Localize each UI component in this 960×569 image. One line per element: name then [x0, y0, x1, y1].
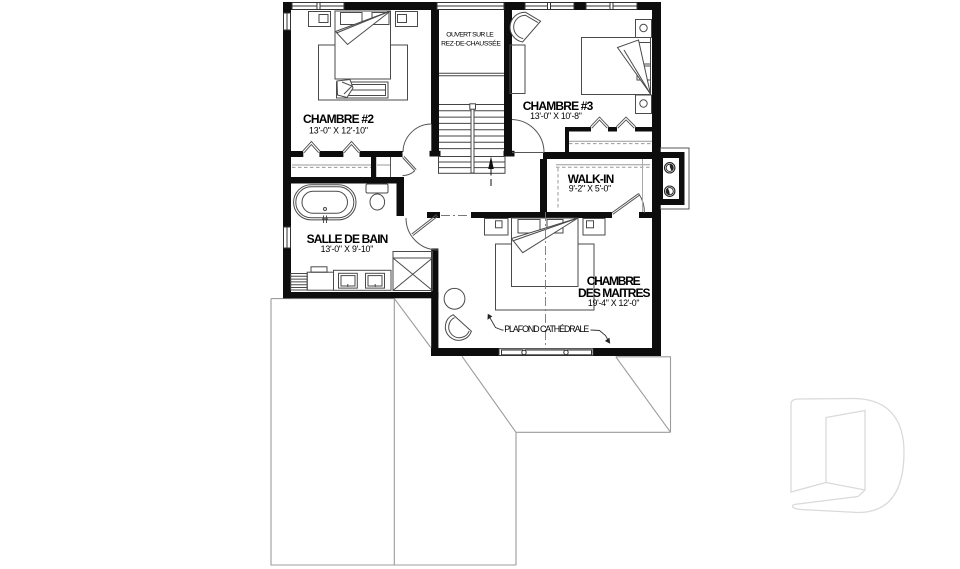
svg-text:OUVERT SUR LE: OUVERT SUR LE: [446, 32, 494, 39]
svg-text:19'-4" X 12'-0": 19'-4" X 12'-0": [588, 298, 640, 308]
svg-text:CHAMBRE #2: CHAMBRE #2: [303, 112, 374, 126]
svg-text:13'-0" X 9'-10": 13'-0" X 9'-10": [321, 244, 374, 254]
svg-text:9'-2" X 5'-0": 9'-2" X 5'-0": [569, 184, 612, 194]
svg-text:PLAFOND CATHÉDRALE: PLAFOND CATHÉDRALE: [504, 324, 589, 334]
svg-text:13'-0" X 12'-10": 13'-0" X 12'-10": [309, 125, 368, 135]
svg-text:13'-0" X 10'-8": 13'-0" X 10'-8": [530, 111, 582, 121]
svg-text:REZ-DE-CHAUSSÉE: REZ-DE-CHAUSSÉE: [441, 39, 501, 48]
